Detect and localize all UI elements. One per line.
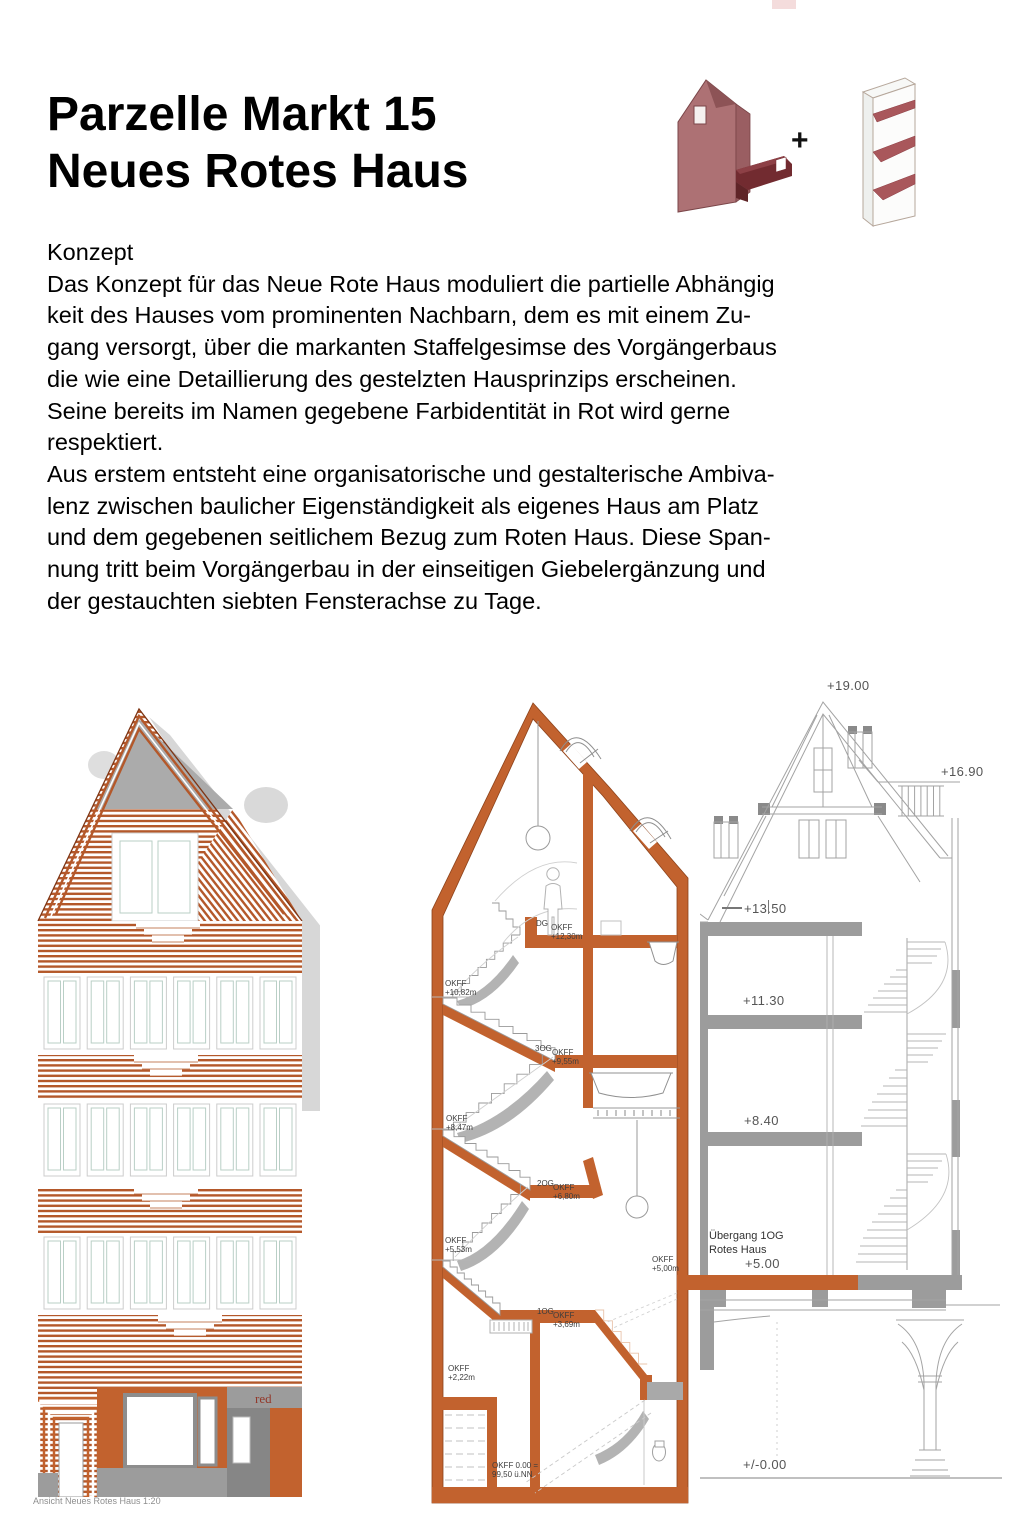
neues-haus-section-drawing bbox=[425, 695, 717, 1520]
level-label-okff-1230: OKFF +12,30m bbox=[551, 923, 582, 941]
skylights bbox=[560, 738, 671, 849]
elevation-mark-1900: +19.00 bbox=[827, 678, 870, 693]
elevation-mark-000: +/-0.00 bbox=[743, 1457, 787, 1472]
page-title: Parzelle Markt 15 Neues Rotes Haus bbox=[47, 86, 468, 200]
elevation-mark-840: +8.40 bbox=[744, 1113, 779, 1128]
title-line2: Neues Rotes Haus bbox=[47, 143, 468, 200]
drawing-caption: Ansicht Neues Rotes Haus 1:20 bbox=[33, 1496, 161, 1506]
level-label-dg: DG bbox=[536, 919, 548, 928]
ground-floor-column bbox=[700, 1300, 1000, 1476]
rotes-haus-section-drawing bbox=[700, 670, 1026, 1530]
level-tick-line bbox=[722, 907, 742, 909]
elevation-mark-500: +5.00 bbox=[745, 1256, 780, 1271]
interior-fixtures bbox=[589, 921, 679, 1485]
level-label-okff-369: OKFF +3,69m bbox=[553, 1311, 580, 1329]
staffel-slab-logo-icon bbox=[833, 72, 925, 228]
level-label-okff-500: OKFF +5,00m bbox=[652, 1255, 679, 1273]
presentation-page: Parzelle Markt 15 Neues Rotes Haus + Kon… bbox=[0, 0, 1026, 1540]
dormer-window bbox=[112, 833, 198, 921]
spiral-stair bbox=[827, 936, 949, 1275]
elevation-mark-1350: +13.50 bbox=[744, 901, 787, 916]
level-label-okff-847: OKFF +8,47m bbox=[446, 1114, 473, 1132]
level-label-1og: 1OG bbox=[537, 1307, 554, 1316]
level-label-3og: 3OG bbox=[535, 1044, 552, 1053]
level-label-okff-222: OKFF +2,22m bbox=[448, 1364, 475, 1382]
level-tick-bar bbox=[768, 900, 769, 914]
uebergang-slab bbox=[700, 1275, 858, 1290]
plus-sign: + bbox=[791, 124, 809, 158]
level-label-2og: 2OG bbox=[537, 1179, 554, 1188]
storefront-red-label: red bbox=[255, 1391, 272, 1407]
concept-text: Konzept Das Konzept für das Neue Rote Ha… bbox=[47, 237, 947, 617]
facade-elevation-drawing bbox=[30, 695, 320, 1507]
elevation-mark-1690: +16.90 bbox=[941, 764, 984, 779]
level-label-okff-1082: OKFF +10,82m bbox=[445, 979, 476, 997]
title-line1: Parzelle Markt 15 bbox=[47, 86, 468, 143]
concept-body: Das Konzept für das Neue Rote Haus modul… bbox=[47, 269, 947, 618]
level-label-okff-000: OKFF 0.00 = 99,50 ü.NN bbox=[492, 1461, 538, 1479]
annex-balustrade bbox=[859, 760, 960, 1275]
shop-window bbox=[125, 1395, 195, 1467]
red-house-logo-icon bbox=[672, 74, 802, 219]
facade-bands bbox=[38, 921, 302, 1387]
level-label-okff-680: OKFF +6,80m bbox=[553, 1183, 580, 1201]
level-label-okff-955: OKFF +9,55m bbox=[552, 1048, 579, 1066]
scan-artifact bbox=[772, 0, 796, 9]
uebergang-label: Übergang 1OG Rotes Haus bbox=[709, 1230, 784, 1257]
concept-heading: Konzept bbox=[47, 237, 947, 269]
level-label-okff-553: OKFF +5,53m bbox=[445, 1236, 472, 1254]
elevation-mark-1130: +11.30 bbox=[743, 993, 785, 1008]
